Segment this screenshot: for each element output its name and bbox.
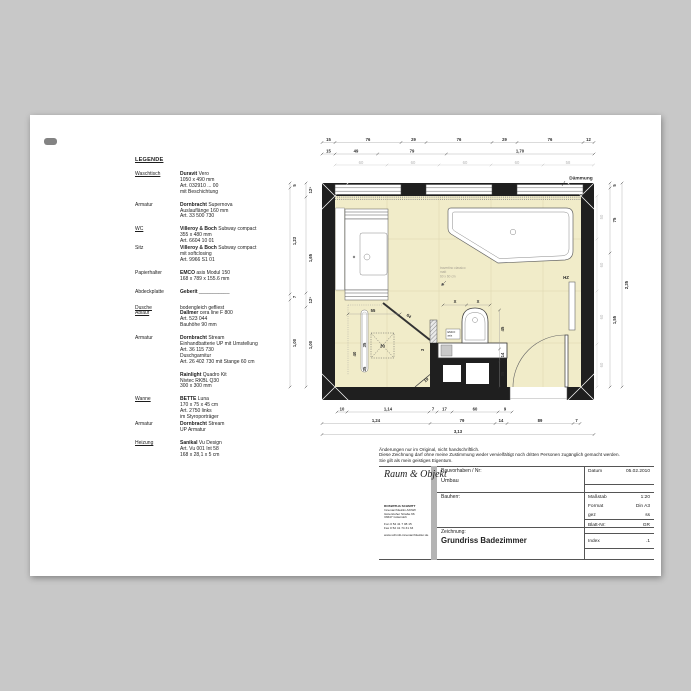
svg-text:7: 7 <box>575 418 578 423</box>
svg-text:40: 40 <box>352 351 357 356</box>
windows <box>335 185 583 195</box>
door-leaf <box>565 335 568 387</box>
legend-item-label: Heizung <box>135 441 180 447</box>
svg-text:14: 14 <box>500 352 505 357</box>
svg-text:15: 15 <box>326 137 331 142</box>
svg-text:3,13: 3,13 <box>454 429 463 434</box>
svg-text:1,24: 1,24 <box>372 418 381 423</box>
svg-text:14: 14 <box>499 418 504 423</box>
legend-item-label: Armatur <box>135 422 180 428</box>
legend-item-line: Geberit ___________ <box>180 290 230 296</box>
legend-item: ArmaturDornbracht StreamEinhandbatterie … <box>135 336 285 366</box>
meta-value: ss <box>645 513 650 518</box>
legend-items: WaschtischDuravit Vero1050 x 490 mmArt. … <box>135 172 285 459</box>
legend-item: ArmaturDornbracht SupernovaAuslauflänge … <box>135 203 285 221</box>
legend-item-label: Armatur <box>135 203 180 209</box>
floorplan-drawing: travertino classico matt 60 x 60 cm <box>285 133 635 438</box>
svg-text:75: 75 <box>612 217 617 222</box>
drawing-sheet: LEGENDE WaschtischDuravit Vero1050 x 490… <box>30 115 661 576</box>
svg-text:17: 17 <box>442 407 447 412</box>
svg-text:60: 60 <box>473 407 478 412</box>
svg-text:76: 76 <box>457 137 462 142</box>
svg-text:79: 79 <box>410 149 415 154</box>
legend-item-label: Ablauf <box>135 311 180 317</box>
legend-item-line: Art. 33 500 730 <box>180 214 233 220</box>
legend-item-label: Wanne <box>135 397 180 403</box>
svg-text:12⁵: 12⁵ <box>308 297 313 304</box>
legend-item-label: WC <box>135 227 180 233</box>
legend-item: Rainlight Quadro KitNivtec RKBL Q30300 x… <box>135 373 285 391</box>
meta-value: GR <box>643 523 650 528</box>
svg-text:Dämmung: Dämmung <box>569 176 593 182</box>
zeichnung-label: Zeichnung: <box>441 529 466 535</box>
shower-drain-channel <box>361 310 368 372</box>
legend-item-line: mit Beschichtung <box>180 190 218 196</box>
legend-item-line: Art. 26 402 730 mit Stange 60 cm <box>180 360 258 366</box>
svg-text:58: 58 <box>566 160 571 165</box>
legend-item: WanneBETTE Luna170 x 75 x 45 cmArt. 2750… <box>135 397 285 421</box>
legend-item: ArmaturDornbracht StreamUP Armatur <box>135 422 285 434</box>
svg-text:7: 7 <box>432 407 435 412</box>
svg-text:49: 49 <box>354 149 359 154</box>
svg-text:89: 89 <box>538 418 543 423</box>
legend-item-label: Papierhalter <box>135 271 180 277</box>
meta-label: Index <box>588 539 600 544</box>
legend-item: DuscheAblaufbodengleich gefliestDallmer … <box>135 306 285 330</box>
wc-bowl <box>462 308 488 343</box>
legend-item: PapierhalterEMCO asis Modul 150168 x 789… <box>135 271 285 283</box>
svg-text:60: 60 <box>599 262 604 267</box>
meta-column: Datum05.02.2010Maßstab1:20FormatDin A3ge… <box>584 466 654 559</box>
legend-title: LEGENDE <box>135 157 285 163</box>
hz-label: HZ <box>563 275 569 280</box>
tap-icon <box>353 256 355 258</box>
meta-label: Blatt-Nr: <box>588 523 606 528</box>
notice-line: Diese Zeichnung darf ohne meine Zustimmu… <box>379 452 620 457</box>
svg-text:76: 76 <box>366 137 371 142</box>
legend-item: WCVilleroy & Boch Subway compact355 x 48… <box>135 227 285 245</box>
svg-text:60: 60 <box>359 160 364 165</box>
screenshot-root: { "colors":{"canvas":"#c8c8c8","paper":"… <box>0 0 691 691</box>
svg-text:1,70: 1,70 <box>516 149 525 154</box>
svg-text:50: 50 <box>599 214 604 219</box>
svg-text:X: X <box>477 299 480 304</box>
svg-text:1,00: 1,00 <box>308 340 313 349</box>
logo-divider-bar <box>431 466 437 560</box>
svg-text:asis: asis <box>448 334 453 338</box>
washbasin <box>345 209 388 300</box>
svg-text:5: 5 <box>292 184 297 187</box>
legend-item-label: Abdeckplatte <box>135 290 180 296</box>
masonry-stub <box>430 320 437 343</box>
legend-item-label: Armatur <box>135 336 180 342</box>
svg-text:60: 60 <box>463 160 468 165</box>
drawing-title: Grundriss Badezimmer <box>441 536 527 545</box>
legend-item: WaschtischDuravit Vero1050 x 490 mmArt. … <box>135 172 285 196</box>
legend-item-line: 168 x 789 x 155.6 mm <box>180 277 230 283</box>
legend: LEGENDE WaschtischDuravit Vero1050 x 490… <box>135 157 285 466</box>
meta-value: 1:20 <box>641 495 650 500</box>
meta-label: Format <box>588 504 603 509</box>
notice-line: Sie gilt als mein geistiges Eigentum. <box>379 458 620 463</box>
svg-text:1,65: 1,65 <box>308 253 313 262</box>
meta-label: Datum <box>588 469 602 474</box>
legend-item-line: 168 x 28,1 x 5 cm <box>180 453 222 459</box>
svg-text:35: 35 <box>362 366 367 371</box>
svg-text:12⁵: 12⁵ <box>308 187 313 194</box>
svg-text:60: 60 <box>599 362 604 367</box>
title-block: Änderungen nur im Original, nicht handsc… <box>379 447 654 560</box>
studio-logo: Raum & Objekt <box>384 469 447 480</box>
svg-text:EMCO: EMCO <box>448 330 456 334</box>
wall-cabinet <box>336 208 345 290</box>
svg-text:1,55: 1,55 <box>612 315 617 324</box>
meta-value: .1 <box>646 539 650 544</box>
bauherr-label: Bauherr: <box>441 494 460 500</box>
svg-text:29: 29 <box>411 137 416 142</box>
svg-text:60 x 60 cm: 60 x 60 cm <box>440 274 456 278</box>
bauvorhaben-value: Umbau <box>441 478 459 484</box>
legend-item-label: Sitz <box>135 246 180 252</box>
svg-text:10: 10 <box>340 407 345 412</box>
svg-text:1,23: 1,23 <box>292 236 297 245</box>
svg-text:9: 9 <box>504 407 507 412</box>
svg-text:60: 60 <box>599 314 604 319</box>
svg-text:2,35: 2,35 <box>624 280 629 289</box>
svg-text:29: 29 <box>502 137 507 142</box>
svg-text:35: 35 <box>362 342 367 347</box>
svg-text:12: 12 <box>586 137 591 142</box>
svg-text:79: 79 <box>460 418 465 423</box>
meta-value: Din A3 <box>636 504 650 509</box>
svg-text:45: 45 <box>500 326 505 331</box>
svg-text:1,00: 1,00 <box>292 338 297 347</box>
studio-address: ROSWITHA SCHMITTInnenarchitektin AKNWGüt… <box>384 505 430 538</box>
legend-item-line: Bauhöhe 90 mm <box>180 323 233 329</box>
svg-text:X: X <box>454 299 457 304</box>
svg-text:60: 60 <box>411 160 416 165</box>
legend-item: HeizungSanikal Vu DesignArt. Vu 001 Int … <box>135 441 285 459</box>
svg-text:35: 35 <box>500 371 505 376</box>
svg-text:15: 15 <box>326 149 331 154</box>
meta-value: 05.02.2010 <box>626 469 650 474</box>
legend-item-line: UP Armatur <box>180 428 224 434</box>
svg-text:7: 7 <box>292 295 297 298</box>
svg-text:55: 55 <box>371 308 376 313</box>
legend-item: AbdeckplatteGeberit ___________ <box>135 290 285 296</box>
meta-label: gez <box>588 513 596 518</box>
legend-item-line: 300 x 300 mm <box>180 384 227 390</box>
meta-label: Maßstab <box>588 495 607 500</box>
svg-text:76: 76 <box>548 137 553 142</box>
legend-item-line: Art. 9966 S1 01 <box>180 258 256 264</box>
address-line: www.schmitt-innenarchitektur.de <box>384 534 430 538</box>
copyright-notice: Änderungen nur im Original, nicht handsc… <box>379 447 620 463</box>
svg-text:60: 60 <box>515 160 520 165</box>
svg-text:1,14: 1,14 <box>384 407 393 412</box>
legend-item: SitzVilleroy & Boch Subway compactmit so… <box>135 246 285 264</box>
scan-smudge <box>44 138 57 145</box>
bauvorhaben-label: Bauvorhaben / Nr: <box>441 468 482 474</box>
svg-text:5: 5 <box>612 184 617 187</box>
svg-text:30: 30 <box>380 344 385 349</box>
legend-item-label: Waschtisch <box>135 172 180 178</box>
